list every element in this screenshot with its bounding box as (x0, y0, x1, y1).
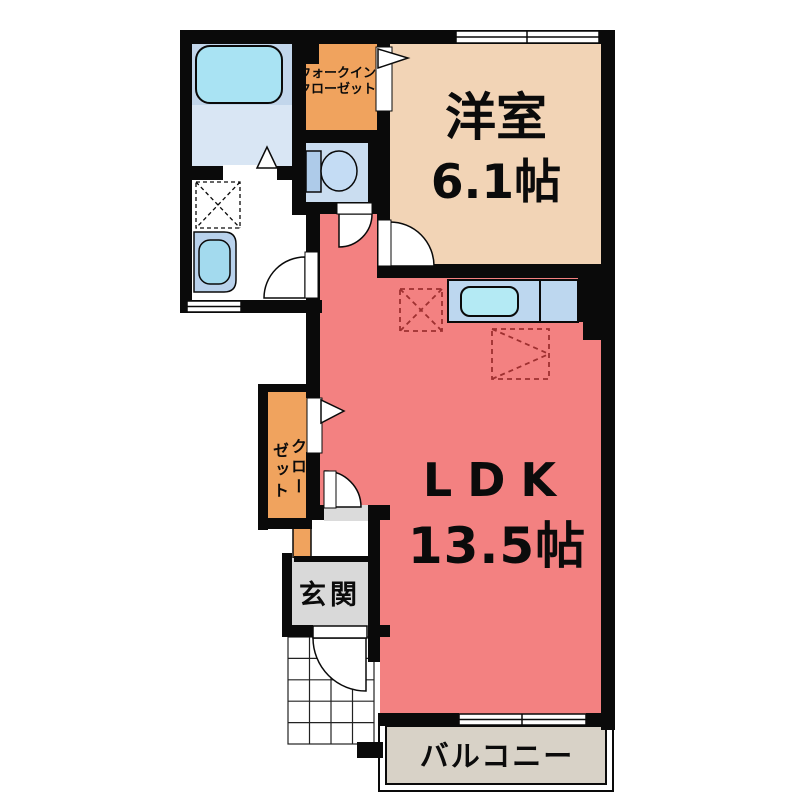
balcony-label: バルコニー (388, 741, 606, 771)
closet-label-col2: ゼット (271, 424, 288, 520)
window-washroom (187, 301, 241, 312)
western-room-size: 6.1帖 (385, 158, 607, 207)
entrance-hall-floor (308, 518, 370, 558)
washbasin-icon (194, 232, 236, 292)
window-balcony-sliding (459, 714, 586, 725)
walkin-closet-label-line1: ウォークイン (292, 66, 382, 82)
ldk-label: LDK (385, 456, 609, 504)
toilet-icon (306, 151, 357, 192)
kitchen-counter (448, 280, 578, 322)
closet-label-col1: クロー (289, 420, 306, 516)
shoe-cabinet (293, 528, 311, 558)
walkin-closet-label: ウォークイン クローゼット (292, 66, 382, 99)
room-bathroom-floor (188, 105, 298, 168)
walkin-closet-label-line2: クローゼット (292, 82, 382, 98)
window-western-room (456, 31, 599, 43)
entrance-label: 玄関 (290, 582, 370, 610)
western-room-label: 洋室 (390, 92, 602, 146)
bathtub-icon (196, 46, 282, 103)
floorplan: 洋室 6.1帖 LDK 13.5帖 ウォークイン クローゼット クロー ゼット … (0, 0, 800, 800)
kitchen-sink-icon (461, 287, 518, 316)
ldk-size: 13.5帖 (385, 520, 609, 573)
